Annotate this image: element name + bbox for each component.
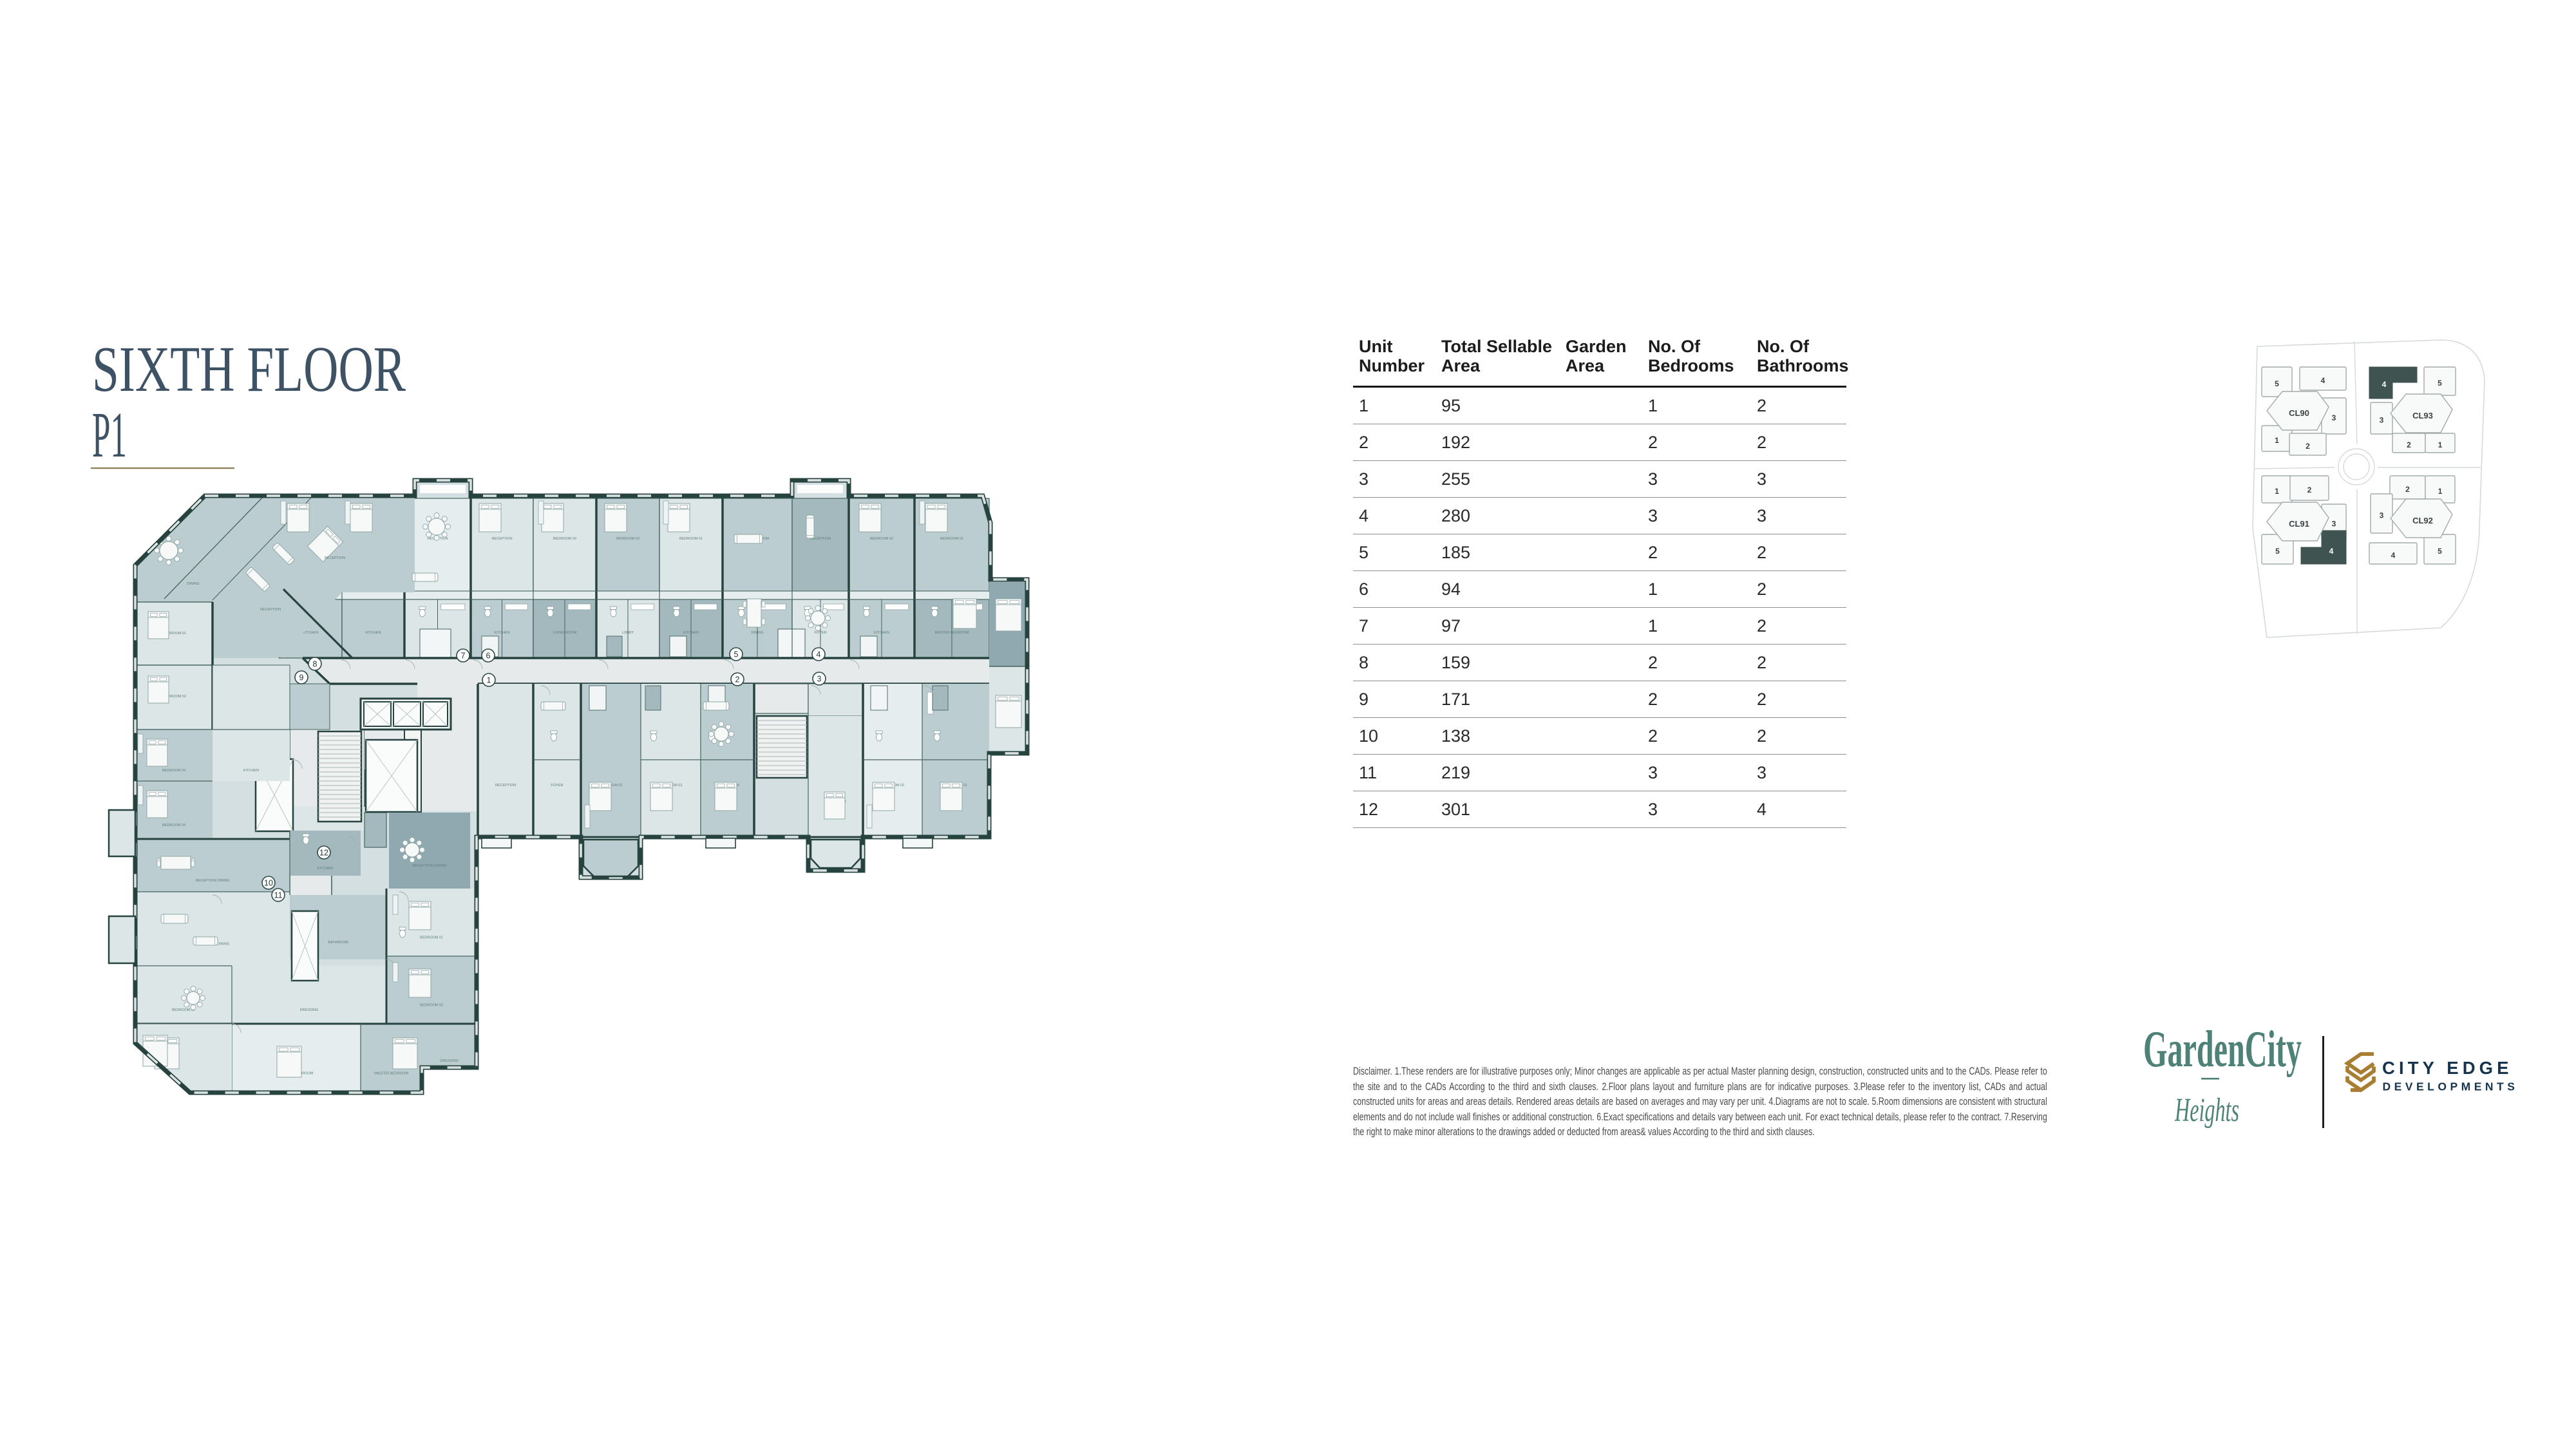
svg-text:8: 8 xyxy=(313,660,317,669)
svg-text:1: 1 xyxy=(2275,436,2279,445)
svg-text:5: 5 xyxy=(2438,547,2442,556)
svg-text:2: 2 xyxy=(2306,442,2310,451)
svg-text:3: 3 xyxy=(2380,416,2384,425)
svg-text:RECEPTION DINING: RECEPTION DINING xyxy=(413,864,447,868)
svg-text:DRESSING: DRESSING xyxy=(440,1059,459,1063)
svg-text:4: 4 xyxy=(2329,547,2334,556)
svg-text:9: 9 xyxy=(299,673,304,683)
svg-text:11: 11 xyxy=(274,891,283,900)
svg-text:CL92: CL92 xyxy=(2412,516,2433,525)
svg-text:KITCHEN: KITCHEN xyxy=(365,631,381,635)
svg-text:4: 4 xyxy=(2321,376,2325,385)
svg-text:P1: P1 xyxy=(92,399,127,471)
svg-text:1: 1 xyxy=(487,676,491,685)
svg-text:1: 1 xyxy=(2438,487,2443,496)
svg-text:BEDROOM 01: BEDROOM 01 xyxy=(679,537,703,541)
svg-text:MASTER BEDROOM: MASTER BEDROOM xyxy=(374,1072,408,1076)
svg-text:BEDROOM 02: BEDROOM 02 xyxy=(420,1004,443,1008)
svg-text:2: 2 xyxy=(2405,485,2410,494)
svg-text:3: 3 xyxy=(2380,511,2384,520)
svg-text:BEDROOM 01: BEDROOM 01 xyxy=(420,936,443,940)
svg-text:2: 2 xyxy=(2407,440,2411,449)
svg-text:5: 5 xyxy=(734,650,739,659)
svg-text:KITCHEN: KITCHEN xyxy=(317,867,333,871)
svg-text:BEDROOM 01: BEDROOM 01 xyxy=(940,537,963,541)
svg-text:4: 4 xyxy=(2391,551,2396,560)
svg-text:10: 10 xyxy=(264,879,273,888)
svg-text:3: 3 xyxy=(2332,520,2336,529)
svg-text:KITCHEN: KITCHEN xyxy=(303,631,318,635)
svg-text:3: 3 xyxy=(2332,413,2336,422)
svg-text:CL91: CL91 xyxy=(2289,519,2309,529)
svg-text:BEDROOM 03: BEDROOM 03 xyxy=(162,769,185,773)
svg-text:FOYER: FOYER xyxy=(551,784,563,787)
svg-text:12: 12 xyxy=(319,849,328,858)
svg-text:3: 3 xyxy=(817,675,822,684)
svg-text:5: 5 xyxy=(2438,379,2442,388)
svg-text:RECEPTION: RECEPTION xyxy=(325,556,345,560)
svg-text:DEVELOPMENTS: DEVELOPMENTS xyxy=(2383,1080,2519,1093)
svg-text:RECEPTION: RECEPTION xyxy=(491,537,512,541)
svg-text:Heights: Heights xyxy=(2174,1092,2239,1129)
svg-text:6: 6 xyxy=(486,652,491,661)
svg-text:CITY EDGE: CITY EDGE xyxy=(2382,1058,2513,1078)
svg-text:RECEPTION DINING: RECEPTION DINING xyxy=(196,879,230,883)
svg-text:RECEPTION: RECEPTION xyxy=(495,784,516,787)
svg-text:2: 2 xyxy=(2307,485,2312,494)
svg-text:7: 7 xyxy=(461,652,466,661)
svg-text:KITCHEN: KITCHEN xyxy=(243,769,259,773)
svg-text:CL90: CL90 xyxy=(2289,408,2309,418)
svg-text:BEDROOM 04: BEDROOM 04 xyxy=(162,824,185,827)
svg-text:RECEPTION: RECEPTION xyxy=(260,608,281,612)
svg-text:DRESSING: DRESSING xyxy=(300,1008,319,1012)
svg-text:DINING: DINING xyxy=(187,582,199,586)
svg-text:1: 1 xyxy=(2438,440,2443,449)
svg-text:5: 5 xyxy=(2275,379,2279,388)
svg-text:2: 2 xyxy=(735,675,740,684)
svg-text:BATHROOM: BATHROOM xyxy=(328,941,348,945)
svg-text:GardenCity: GardenCity xyxy=(2143,1020,2302,1078)
svg-text:4: 4 xyxy=(817,650,821,659)
svg-text:BEDROOM 02: BEDROOM 02 xyxy=(870,537,893,541)
svg-text:SIXTH FLOOR: SIXTH FLOOR xyxy=(92,333,406,405)
svg-text:1: 1 xyxy=(2275,487,2279,496)
svg-text:CL93: CL93 xyxy=(2412,411,2433,420)
svg-text:BEDROOM 03: BEDROOM 03 xyxy=(553,537,576,541)
svg-text:BEDROOM 02: BEDROOM 02 xyxy=(616,537,639,541)
svg-text:5: 5 xyxy=(2275,547,2280,556)
svg-text:4: 4 xyxy=(2382,380,2387,389)
